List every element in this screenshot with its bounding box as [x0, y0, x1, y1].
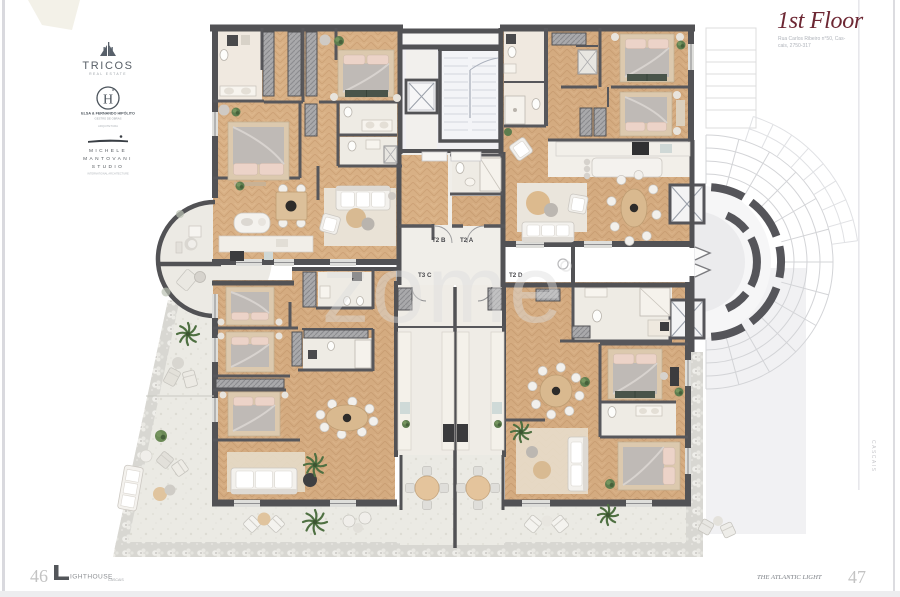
- svg-text:TRICOS: TRICOS: [82, 60, 133, 72]
- svg-text:1st Floor: 1st Floor: [777, 8, 864, 34]
- svg-text:47: 47: [848, 567, 866, 587]
- svg-text:H: H: [103, 93, 113, 108]
- svg-text:IGHTHOUSE: IGHTHOUSE: [70, 574, 113, 581]
- svg-text:ELSA & FERNANDO HIPÓLITO: ELSA & FERNANDO HIPÓLITO: [81, 111, 135, 116]
- svg-text:cais, 2750-317: cais, 2750-317: [778, 43, 811, 49]
- svg-text:zome: zome: [322, 236, 565, 343]
- svg-text:GESTÃO DE OBRAS: GESTÃO DE OBRAS: [95, 116, 122, 121]
- svg-text:Rua Carlos Ribeiro n°50, Cas-: Rua Carlos Ribeiro n°50, Cas-: [778, 36, 846, 42]
- svg-text:REAL ESTATE: REAL ESTATE: [89, 72, 127, 76]
- svg-text:CASCAIS: CASCAIS: [108, 578, 124, 582]
- svg-text:MANTOVANI: MANTOVANI: [83, 156, 133, 162]
- svg-text:CASCAIS: CASCAIS: [870, 440, 876, 472]
- svg-text:ARQUITETURA: ARQUITETURA: [98, 124, 118, 128]
- svg-text:46: 46: [30, 566, 48, 586]
- svg-text:INTERNATIONAL ARCHITECTURE: INTERNATIONAL ARCHITECTURE: [87, 172, 129, 176]
- svg-text:MICHELE: MICHELE: [89, 148, 127, 154]
- svg-text:STUDIO: STUDIO: [92, 164, 125, 170]
- svg-text:THE ATLANTIC LIGHT: THE ATLANTIC LIGHT: [757, 574, 823, 581]
